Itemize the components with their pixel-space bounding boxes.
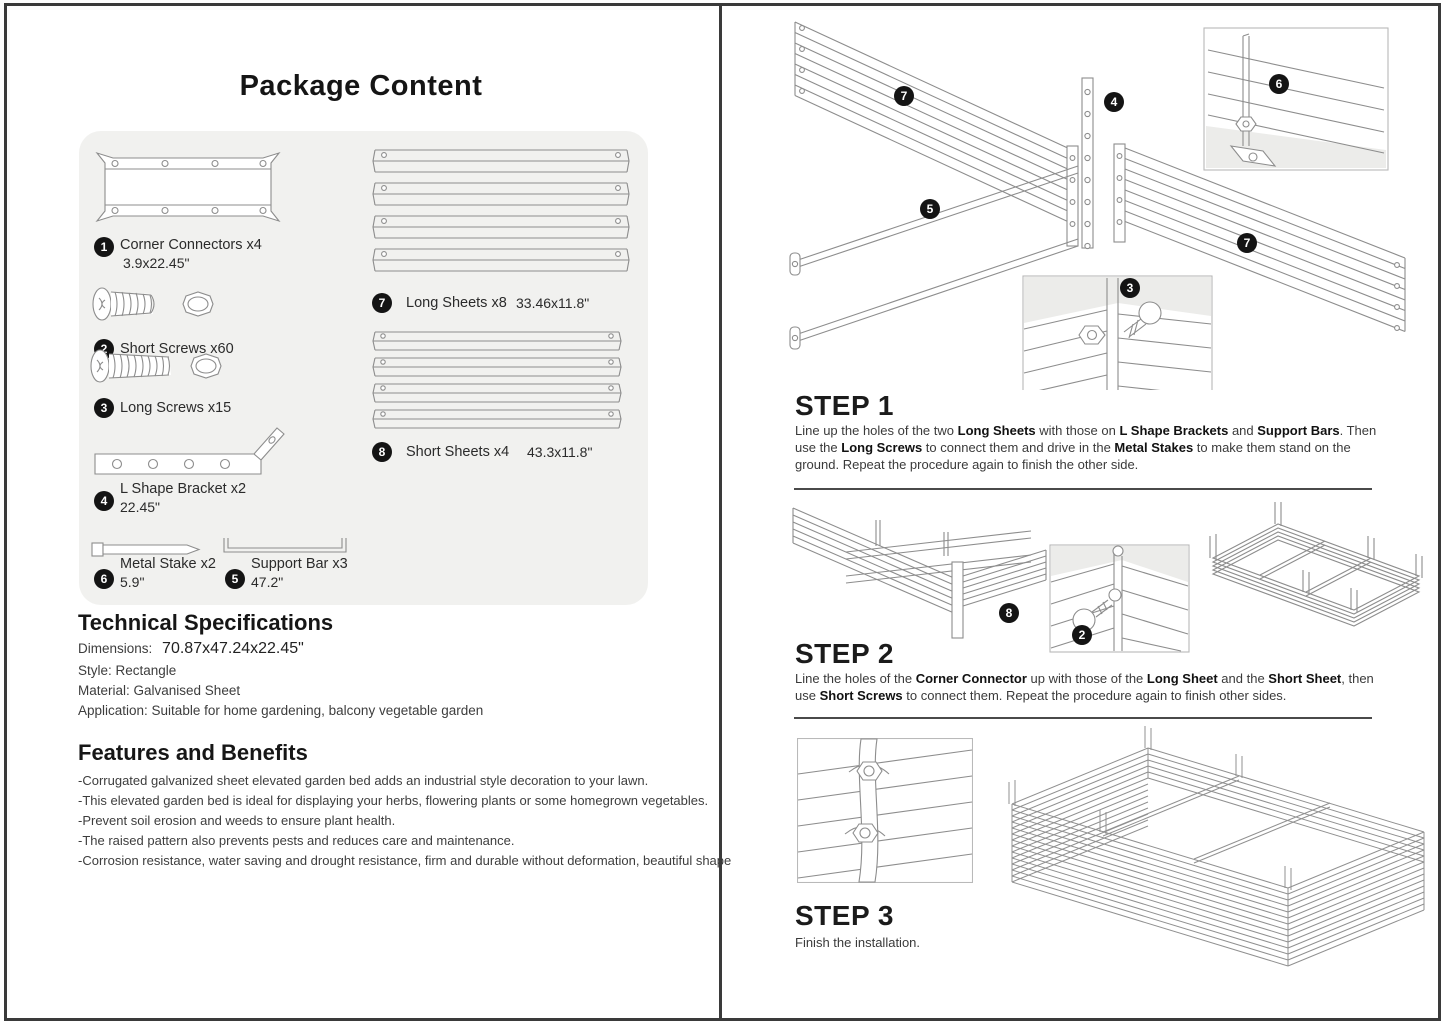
spec-dimensions-label: Dimensions: (78, 641, 152, 656)
short-screw-drawing (89, 283, 229, 325)
part-label: Support Bar x3 (251, 556, 348, 572)
part-dims: 43.3x11.8" (527, 444, 592, 460)
package-content-box: 1 Corner Connectors x4 3.9x22.45" 2 Shor… (79, 131, 648, 605)
callout-badge: 3 (1120, 278, 1140, 298)
step2-text-segment: up with those of the (1027, 671, 1147, 686)
corner-connector-drawing (93, 147, 283, 227)
part-dims: 47.2" (251, 574, 283, 590)
part-badge: 5 (225, 569, 245, 589)
step1-text-segment: Metal Stakes (1114, 440, 1193, 455)
step2-text-segment: and the (1218, 671, 1269, 686)
step2-title: STEP 2 (795, 638, 894, 670)
step1-text-segment: and (1228, 423, 1257, 438)
callout-badge: 7 (1237, 233, 1257, 253)
step2-text-segment: to connect them. Repeat the procedure ag… (903, 688, 1287, 703)
step1-title: STEP 1 (795, 390, 894, 422)
step1-text-segment: to connect them and drive in the (922, 440, 1114, 455)
part-badge: 4 (94, 491, 114, 511)
package-content-title: Package Content (0, 70, 722, 103)
spec-dimensions: Dimensions: 70.87x47.24x22.45" (78, 640, 304, 658)
short-sheets-drawing (371, 329, 623, 435)
part-dims: 5.9" (120, 574, 144, 590)
step2-text-segment: Corner Connector (916, 671, 1027, 686)
instruction-sheet: Package Content 1 Corner Connectors x4 3… (0, 0, 1445, 1026)
part-dims: 3.9x22.45" (123, 255, 189, 271)
step2-text-segment: Short Screws (820, 688, 903, 703)
feature-item: -The raised pattern also prevents pests … (78, 833, 514, 848)
step1-text-segment: with those on (1036, 423, 1120, 438)
part-label: Long Sheets x8 (406, 295, 507, 311)
step2-text-segment: Short Sheet (1268, 671, 1341, 686)
callout-badge: 7 (894, 86, 914, 106)
step3-description: Finish the installation. (795, 934, 1195, 951)
part-dims: 33.46x11.8" (516, 295, 589, 311)
part-badge: 3 (94, 398, 114, 418)
long-screw-drawing (87, 345, 237, 387)
callout-badge: 6 (1269, 74, 1289, 94)
spec-material: Material: Galvanised Sheet (78, 683, 240, 698)
feature-item: -Corrosion resistance, water saving and … (78, 853, 731, 868)
callout-badge: 8 (999, 603, 1019, 623)
long-sheets-drawing (371, 146, 631, 282)
features-title: Features and Benefits (78, 740, 308, 766)
step1-diagram (726, 8, 1438, 390)
part-label: Corner Connectors x4 (120, 237, 262, 253)
step1-text-segment: Line up the holes of the two (795, 423, 958, 438)
step3-title: STEP 3 (795, 900, 894, 932)
part-badge: 1 (94, 237, 114, 257)
step2-description: Line the holes of the Corner Connector u… (795, 670, 1395, 704)
step2-text-segment: Line the holes of the (795, 671, 916, 686)
step1-text-segment: Support Bars (1257, 423, 1339, 438)
section-divider (794, 717, 1372, 719)
section-divider (794, 488, 1372, 490)
part-badge: 8 (372, 442, 392, 462)
feature-item: -This elevated garden bed is ideal for d… (78, 793, 708, 808)
l-shape-bracket-drawing (91, 426, 286, 478)
callout-badge: 2 (1072, 625, 1092, 645)
step1-text-segment: L Shape Brackets (1119, 423, 1228, 438)
step1-text-segment: Long Screws (841, 440, 922, 455)
feature-item: -Prevent soil erosion and weeds to ensur… (78, 813, 395, 828)
callout-badge: 4 (1104, 92, 1124, 112)
part-label: L Shape Bracket x2 (120, 481, 246, 497)
part-label: Short Sheets x4 (406, 444, 509, 460)
feature-item: -Corrugated galvanized sheet elevated ga… (78, 773, 648, 788)
spec-application: Application: Suitable for home gardening… (78, 703, 483, 718)
step2-text-segment: Long Sheet (1147, 671, 1218, 686)
callout-badge: 5 (920, 199, 940, 219)
step1-text-segment: Long Sheets (958, 423, 1036, 438)
step3-bolt-detail (797, 738, 973, 883)
part-badge: 6 (94, 569, 114, 589)
part-dims: 22.45" (120, 499, 160, 515)
step1-description: Line up the holes of the two Long Sheets… (795, 422, 1385, 473)
part-label: Long Screws x15 (120, 400, 231, 416)
part-label: Metal Stake x2 (120, 556, 216, 572)
spec-style: Style: Rectangle (78, 663, 176, 678)
part-badge: 7 (372, 293, 392, 313)
spec-dimensions-value: 70.87x47.24x22.45" (162, 640, 304, 657)
tech-specs-title: Technical Specifications (78, 610, 333, 636)
panel-divider (719, 3, 722, 1021)
